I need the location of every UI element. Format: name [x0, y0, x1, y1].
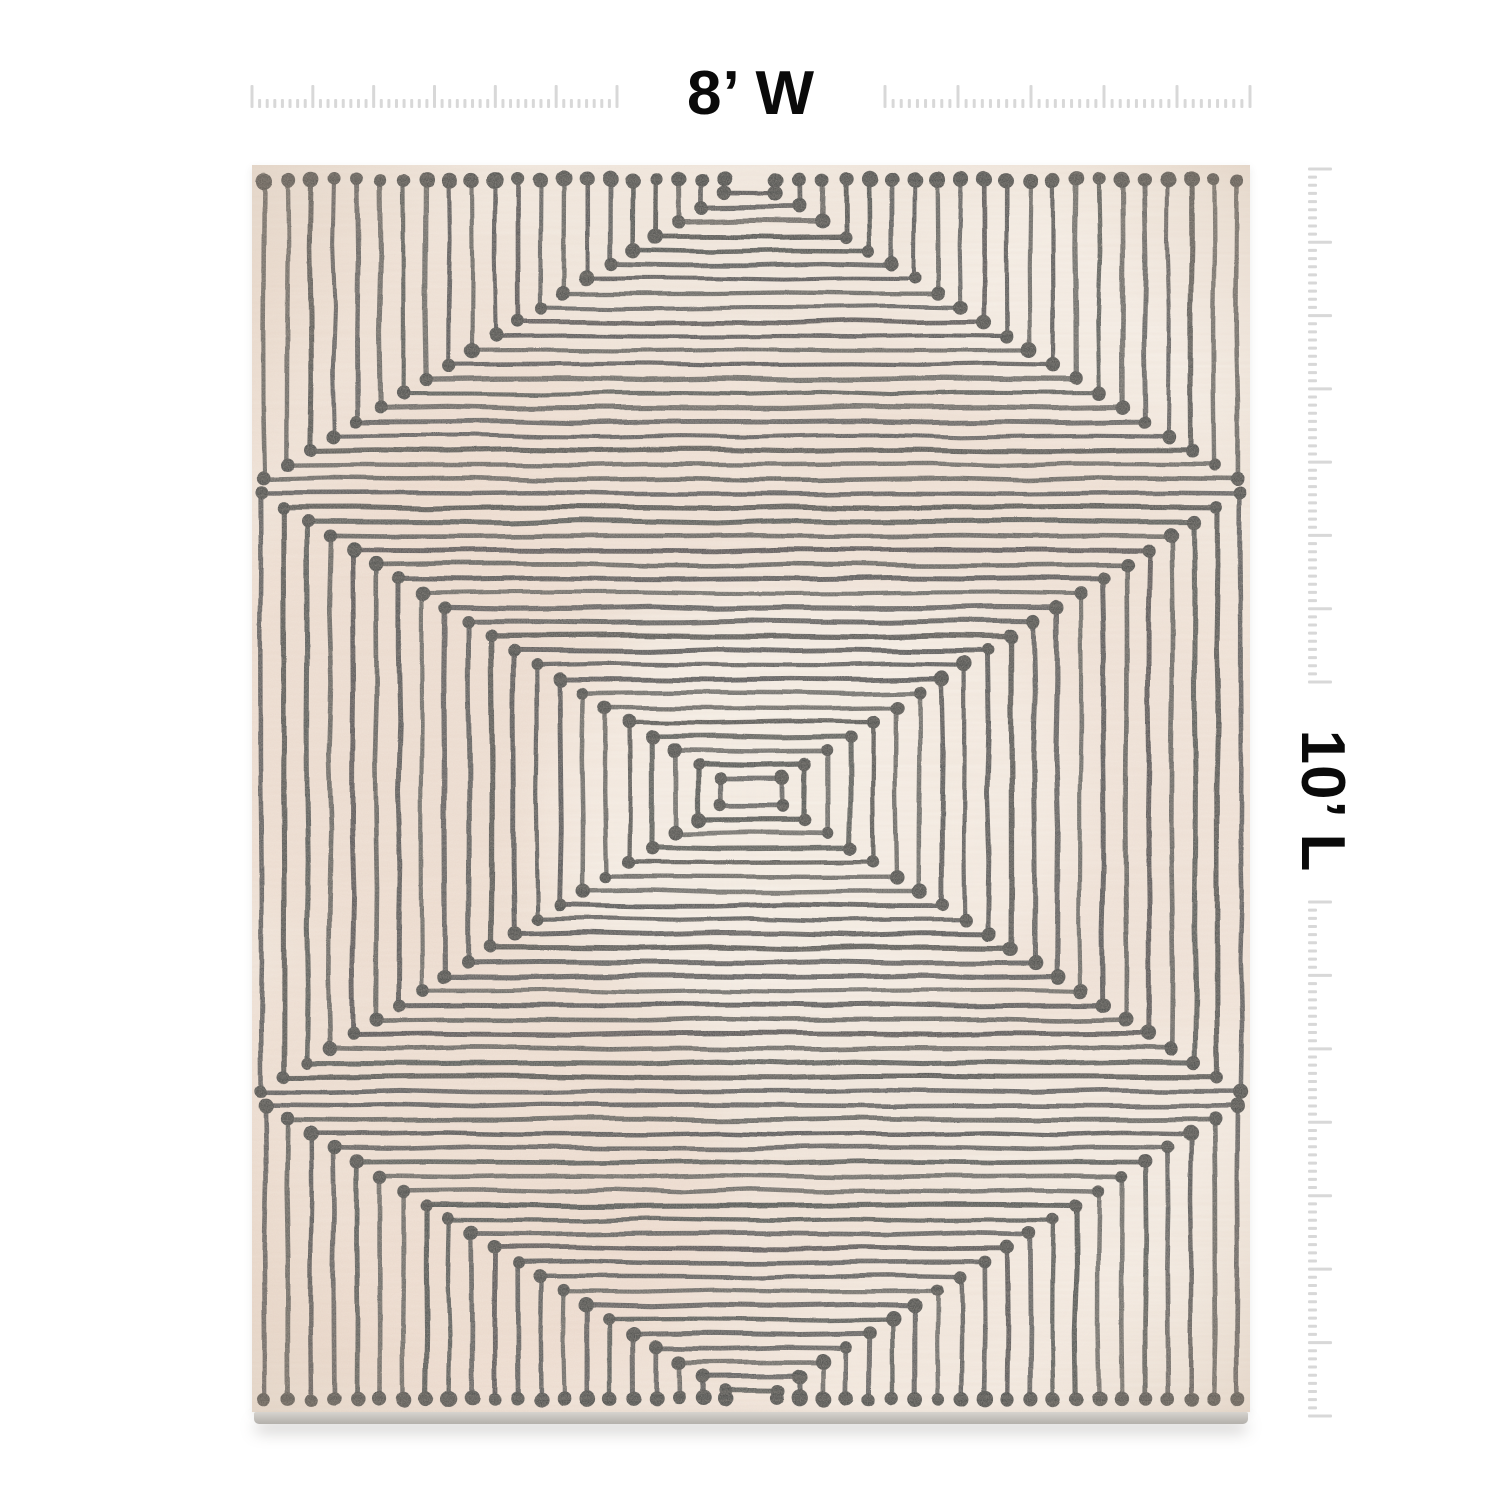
- rug-image: [252, 165, 1250, 1412]
- rug-pattern: [252, 165, 1250, 1412]
- rug-bottom-edge: [254, 1412, 1248, 1424]
- width-dimension-label: 8’ W: [551, 61, 951, 127]
- product-dimension-view: 8’ W 10’ L: [0, 0, 1500, 1500]
- length-dimension-label: 10’ L: [1289, 601, 1355, 1001]
